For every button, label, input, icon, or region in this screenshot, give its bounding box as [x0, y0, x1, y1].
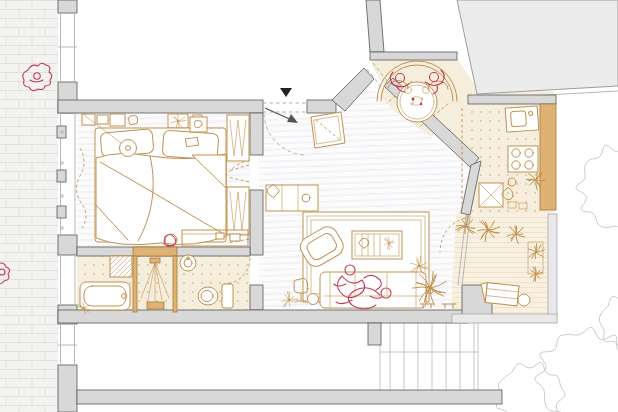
- floor-plan-drawing: Hand-drawn apartment floor plan with cou…: [0, 0, 618, 412]
- kitchen-sink: [505, 106, 539, 132]
- round-dining-table: [397, 82, 437, 122]
- neighbor-building-mass: [457, 0, 618, 94]
- double-bed: [95, 128, 226, 245]
- brick-sidewalk: [0, 0, 58, 412]
- terrace-side-table: [518, 294, 530, 306]
- kitchen-counter: [540, 104, 556, 210]
- kitchen-stove: [508, 146, 538, 172]
- entry-hall: [311, 112, 345, 148]
- sideboard: [266, 185, 318, 211]
- lounge-chair: [479, 282, 519, 306]
- entry-cabinet: [311, 112, 345, 148]
- floor-plan-canvas: Hand-drawn apartment floor plan with cou…: [0, 0, 618, 412]
- bathtub: [80, 282, 130, 310]
- bedroom: [80, 112, 249, 246]
- side-table: [308, 294, 319, 305]
- washbasin: [180, 255, 196, 271]
- coffee-table: [352, 231, 402, 259]
